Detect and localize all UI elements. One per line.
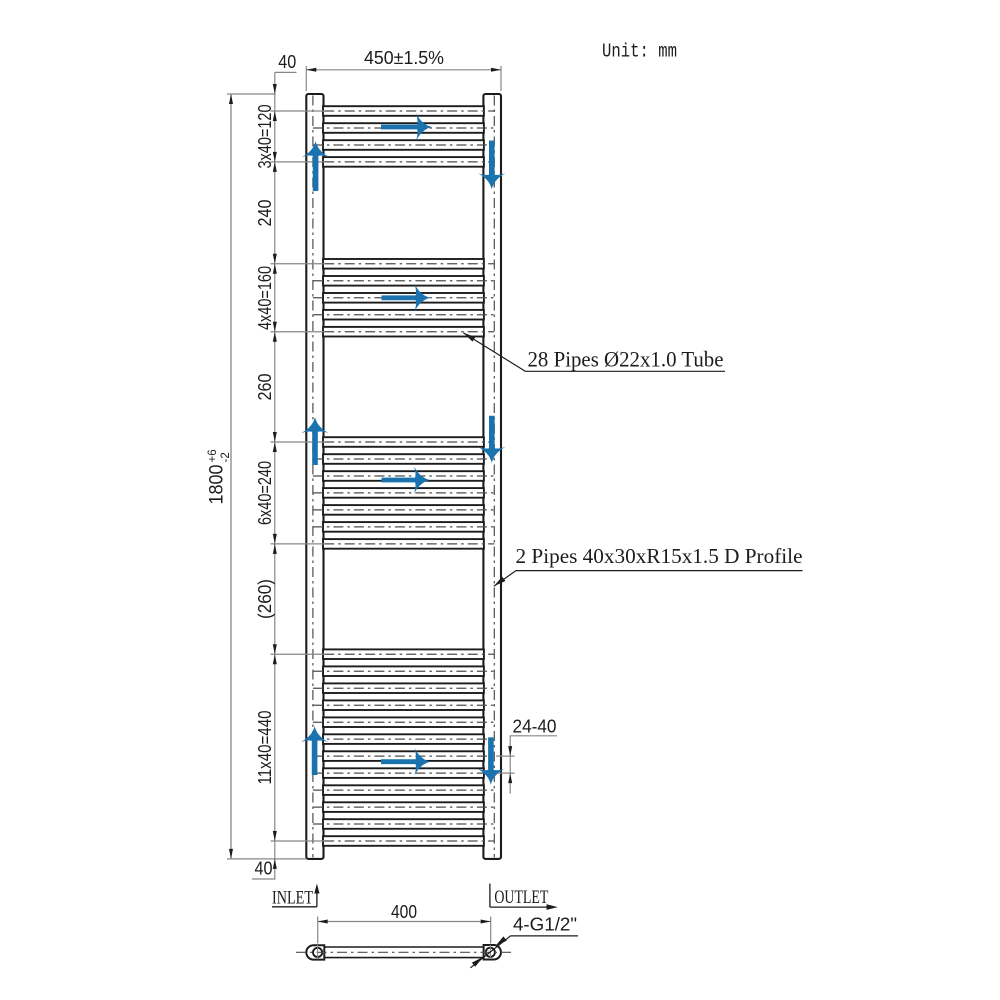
svg-text:Unit: mm: Unit: mm <box>602 41 677 63</box>
svg-text:4-G1/2": 4-G1/2" <box>513 914 577 935</box>
svg-text:260: 260 <box>255 374 275 401</box>
svg-text:OUTLET: OUTLET <box>494 887 548 908</box>
svg-text:4x40=160: 4x40=160 <box>255 266 275 330</box>
svg-text:1800: 1800 <box>207 465 228 505</box>
svg-text:3x40=120: 3x40=120 <box>255 105 275 169</box>
svg-text:+6: +6 <box>207 449 219 462</box>
svg-text:INLET: INLET <box>272 888 313 909</box>
svg-text:40: 40 <box>255 859 273 879</box>
svg-text:24-40: 24-40 <box>513 717 557 737</box>
svg-text:(260): (260) <box>255 579 275 619</box>
svg-text:28 Pipes Ø22x1.0 Tube: 28 Pipes Ø22x1.0 Tube <box>528 346 724 371</box>
svg-text:2 Pipes 40x30xR15x1.5 D Profil: 2 Pipes 40x30xR15x1.5 D Profile <box>516 544 803 568</box>
svg-text:6x40=240: 6x40=240 <box>255 461 275 525</box>
svg-text:40: 40 <box>278 52 296 72</box>
svg-text:450±1.5%: 450±1.5% <box>364 47 444 68</box>
svg-text:240: 240 <box>255 200 275 227</box>
svg-text:-2: -2 <box>220 452 232 462</box>
svg-text:400: 400 <box>391 902 417 922</box>
svg-text:11x40=440: 11x40=440 <box>255 711 275 785</box>
